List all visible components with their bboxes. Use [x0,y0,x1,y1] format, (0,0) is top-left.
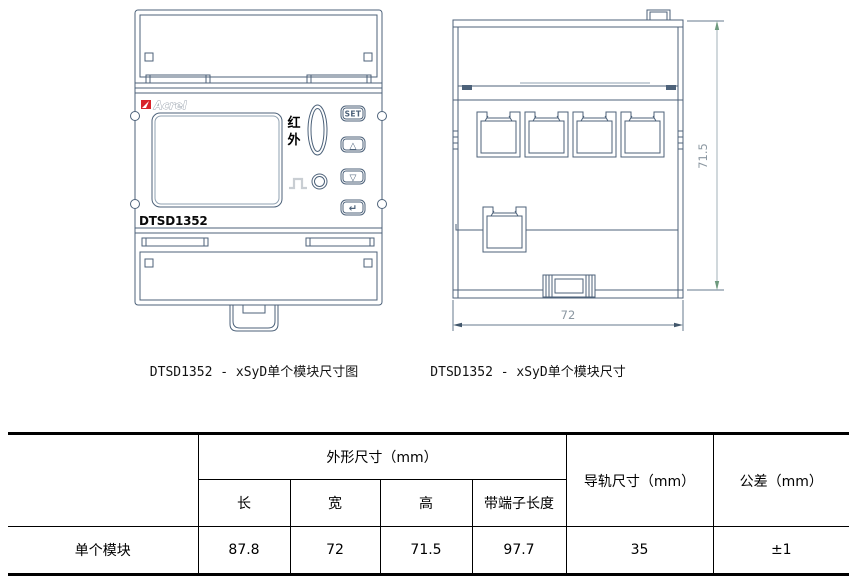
ir-label-char-1: 红 [287,115,300,131]
bottom-left-screw-hole [145,259,153,267]
top-right-terminal-cover-tab [307,75,371,83]
top-right-screw-hole [364,53,372,61]
header-outline-size: 外形尺寸（mm） [198,434,566,480]
terminal-block [525,112,568,157]
top-left-screw-hole [145,53,153,61]
table-row: 单个模块 87.8 72 71.5 97.7 35 ±1 [8,527,849,575]
header-terminal-length: 带端子长度 [472,480,566,527]
dim-height-value: 71.5 [696,143,710,169]
down-button: ▽ [341,169,365,184]
dim-width-value: 72 [561,308,576,322]
value-rail: 35 [566,527,713,575]
bottom-right-terminal-cover-tab [306,238,374,246]
mid-seam-line [456,224,678,230]
up-button: △ [341,137,365,152]
caption-front-view: DTSD1352 - xSyD单个模块尺寸图 [98,361,410,380]
acrel-logo-text: Acrel [153,99,187,112]
terminal-block-aux [483,207,526,252]
top-left-terminal-cover-tab [146,75,210,83]
lcd-screen [152,113,282,207]
header-width: 宽 [290,480,380,527]
row-label: 单个模块 [8,527,198,575]
pulse-icon [289,179,307,188]
bottom-right-screw-hole [364,259,372,267]
front-top-cover [135,15,382,93]
side-top-tab [647,10,670,20]
value-length: 87.8 [198,527,290,575]
dimension-height: 71.5 [687,21,724,290]
side-view [453,10,683,298]
header-tolerance: 公差（mm） [713,434,849,527]
dimension-table: 外形尺寸（mm） 导轨尺寸（mm） 公差（mm） 长 宽 高 带端子长度 单个模… [8,432,849,576]
set-button: SET [341,106,365,121]
enter-button: ↵ [341,200,365,215]
down-arrow-icon: ▽ [350,174,357,184]
terminal-block [621,112,664,157]
header-rail-size: 导轨尺寸（mm） [566,434,713,527]
up-arrow-icon: △ [350,142,357,152]
side-body-outline [453,20,683,298]
header-height: 高 [380,480,472,527]
caption-side-view: DTSD1352 - xSyD单个模块尺寸 [408,361,648,380]
dimension-drawings: Acrel 红 外 [0,0,855,410]
header-length: 长 [198,480,290,527]
enter-arrow-icon: ↵ [349,204,357,215]
terminal-block [573,112,616,157]
set-button-label: SET [345,110,362,119]
terminal-cover-seam [453,83,683,100]
panel-edge-notches [131,112,387,209]
front-bottom-cover [135,228,382,300]
din-clip-tab [230,305,278,331]
value-width: 72 [290,527,380,575]
bottom-left-terminal-cover-tab [142,238,208,246]
value-terminal-length: 97.7 [472,527,566,575]
pulse-led [289,174,327,189]
front-body-outline [135,10,382,305]
ir-label-char-2: 外 [286,132,300,148]
terminal-block [477,112,520,157]
terminal-blocks [477,112,664,252]
page: Acrel 红 外 [0,0,855,588]
model-label: DTSD1352 [139,214,208,228]
ir-window [308,105,327,155]
dimension-width: 72 [453,300,683,331]
bottom-connector [543,275,595,297]
table-corner-cell [8,434,198,527]
front-view: Acrel 红 外 [131,10,387,331]
value-tolerance: ±1 [713,527,849,575]
acrel-logo: Acrel [141,99,187,112]
front-face-panel: Acrel 红 外 [131,99,387,228]
value-height: 71.5 [380,527,472,575]
